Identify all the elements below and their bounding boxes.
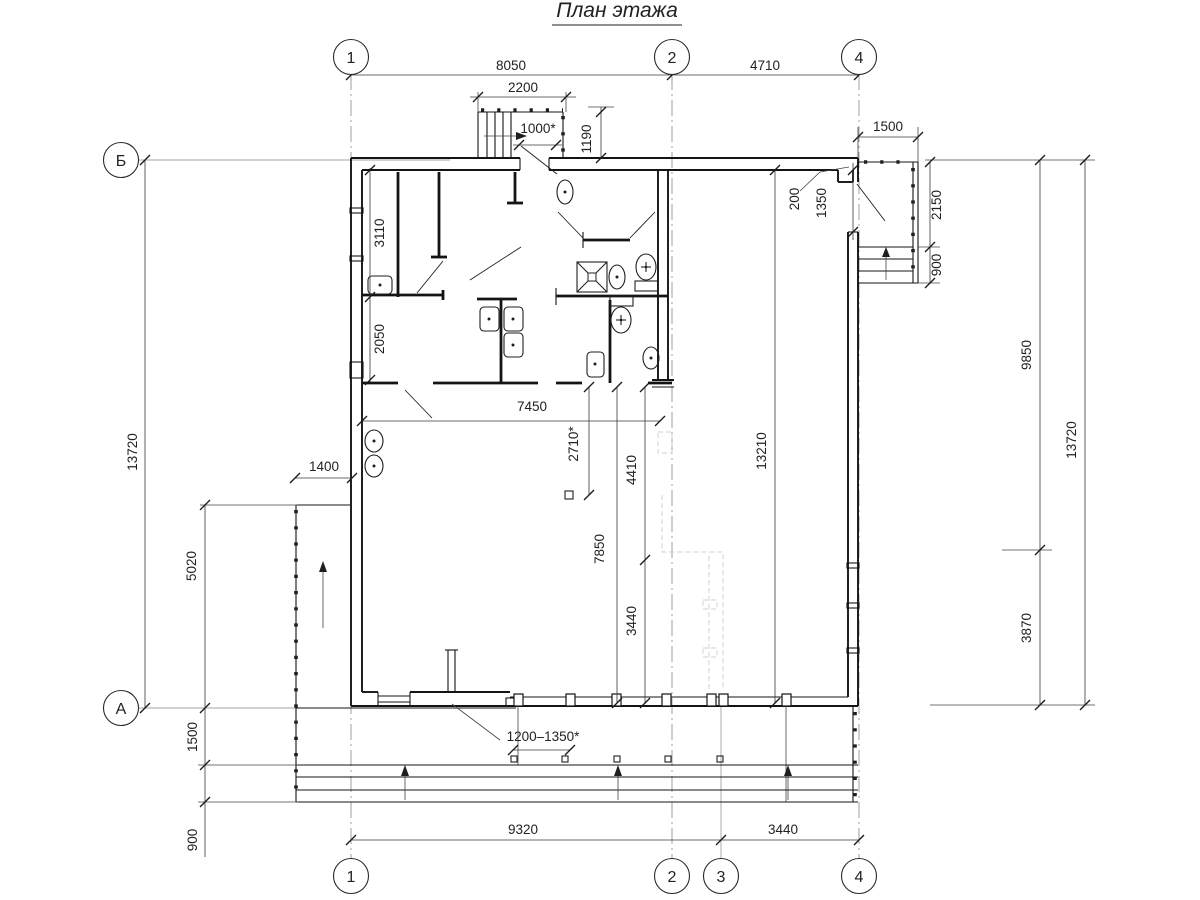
- dim-hall-depth: 7850: [592, 534, 607, 564]
- drawing-title: План этажа: [556, 0, 678, 22]
- grid-axes: [138, 74, 859, 859]
- interior-partitions: [362, 170, 674, 387]
- terrace: [296, 706, 858, 802]
- svg-text:2: 2: [668, 50, 677, 67]
- dim-offset-200: 200: [787, 188, 802, 211]
- porch: [858, 162, 918, 283]
- svg-text:Б: Б: [116, 153, 127, 170]
- dim-right-upper: 9850: [1019, 340, 1034, 370]
- dim-span-1-3: 9320: [508, 822, 538, 837]
- dim-room-a-depth: 3110: [372, 218, 387, 247]
- svg-text:3: 3: [717, 869, 726, 886]
- svg-text:1: 1: [347, 50, 356, 67]
- toilet-1: [635, 254, 658, 291]
- ramp-direction-arrow: [319, 561, 327, 572]
- dim-hall-width: 7450: [517, 399, 547, 414]
- dimension-ticks: [140, 70, 1090, 845]
- dim-terrace-step: 900: [185, 829, 200, 852]
- dim-span-3-4: 3440: [768, 822, 798, 837]
- dim-post-gap: 1200–1350*: [507, 729, 581, 744]
- ramp-annex: [296, 505, 351, 802]
- dim-span-1-2: 8050: [496, 58, 526, 73]
- column-post: [565, 491, 573, 499]
- shower-tray: [577, 262, 607, 292]
- terrace-arrow-2: [614, 765, 622, 776]
- leader-1200-1350: [452, 704, 500, 740]
- dim-ghost-bottom: 3440: [624, 606, 639, 636]
- dim-porch-depth: 2150: [929, 190, 944, 220]
- hall-sinks: [365, 430, 383, 477]
- dim-room-b-depth: 2050: [372, 324, 387, 354]
- svg-text:2: 2: [668, 869, 677, 886]
- toilet-2: [610, 296, 633, 333]
- dim-total-left: 13720: [125, 433, 140, 471]
- svg-text:4: 4: [855, 869, 864, 886]
- dim-total-right: 13720: [1064, 421, 1079, 459]
- dim-porch-width: 1500: [873, 119, 903, 134]
- dim-col-offset: 2710*: [566, 426, 581, 462]
- dim-entry-width: 1000*: [520, 121, 556, 136]
- sink-oval-2: [643, 347, 659, 369]
- fixtures: [365, 180, 659, 499]
- floor-plan: План этажа: [0, 0, 1200, 900]
- dimension-labels: 8050 4710 2200 1000* 1190 1500 200 1350 …: [125, 58, 1079, 851]
- door-swings: [405, 146, 885, 418]
- svg-text:А: А: [116, 701, 127, 718]
- dimension-lines: [145, 75, 1095, 857]
- dim-stair-width: 2200: [508, 80, 538, 95]
- dim-ramp-width: 1400: [309, 459, 339, 474]
- dim-porch-steps: 900: [929, 254, 944, 277]
- terrace-arrow-3: [784, 765, 792, 776]
- dim-entry-depth: 1190: [579, 124, 594, 153]
- ghost-outline: [658, 432, 723, 690]
- wall-sink-top: [557, 180, 573, 204]
- dim-right-lower: 3870: [1019, 613, 1034, 643]
- dim-porch-door: 1350: [814, 188, 829, 218]
- dim-ramp-length: 5020: [184, 551, 199, 581]
- svg-text:1: 1: [347, 869, 356, 886]
- sink-oval-1: [609, 265, 625, 289]
- porch-direction-arrow: [882, 247, 890, 257]
- dim-ghost-top: 4410: [624, 455, 639, 485]
- sink-square: [587, 352, 604, 377]
- sink-room-left: [368, 276, 392, 294]
- dim-terrace-depth: 1500: [185, 722, 200, 752]
- dim-span-2-4: 4710: [750, 58, 780, 73]
- dim-interior-depth: 13210: [754, 432, 769, 470]
- terrace-arrow-1: [401, 765, 409, 776]
- svg-text:4: 4: [855, 50, 864, 67]
